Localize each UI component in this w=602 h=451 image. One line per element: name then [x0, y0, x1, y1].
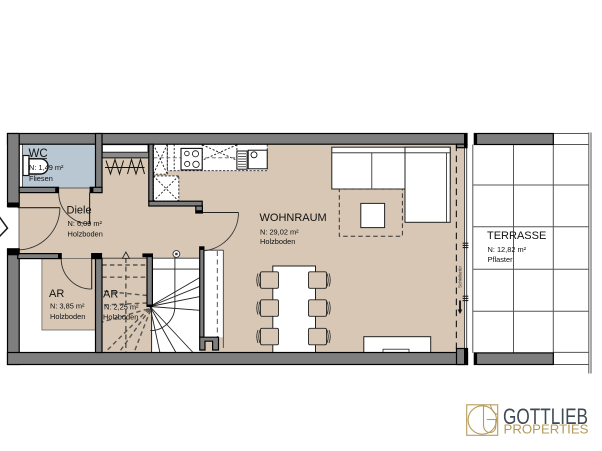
svg-text:N: 2,25 m²: N: 2,25 m²: [104, 302, 139, 311]
svg-text:N: 6,09 m²: N: 6,09 m²: [68, 219, 103, 228]
svg-text:N: 1,49 m²: N: 1,49 m²: [29, 163, 64, 172]
svg-text:Pflaster: Pflaster: [488, 255, 514, 264]
svg-text:N: 29,02 m²: N: 29,02 m²: [260, 228, 299, 237]
svg-text:AR: AR: [103, 289, 118, 301]
svg-text:Holzboden: Holzboden: [68, 230, 103, 239]
svg-text:Schiebetür: Schiebetür: [458, 266, 463, 288]
svg-text:PROPERTIES: PROPERTIES: [504, 422, 589, 437]
svg-text:TERRASSE: TERRASSE: [487, 230, 546, 242]
svg-text:Diele: Diele: [67, 205, 92, 217]
svg-text:Holzboden: Holzboden: [103, 313, 138, 322]
svg-text:N: 12,82 m²: N: 12,82 m²: [488, 245, 527, 254]
svg-text:WC: WC: [29, 148, 48, 160]
svg-text:Holzboden: Holzboden: [50, 312, 85, 321]
svg-text:Fliesen: Fliesen: [29, 174, 53, 183]
svg-text:Holzboden: Holzboden: [260, 237, 295, 246]
svg-text:WOHNRAUM: WOHNRAUM: [260, 212, 327, 224]
svg-text:AR: AR: [49, 288, 64, 300]
svg-text:N: 3,85 m²: N: 3,85 m²: [50, 302, 85, 311]
